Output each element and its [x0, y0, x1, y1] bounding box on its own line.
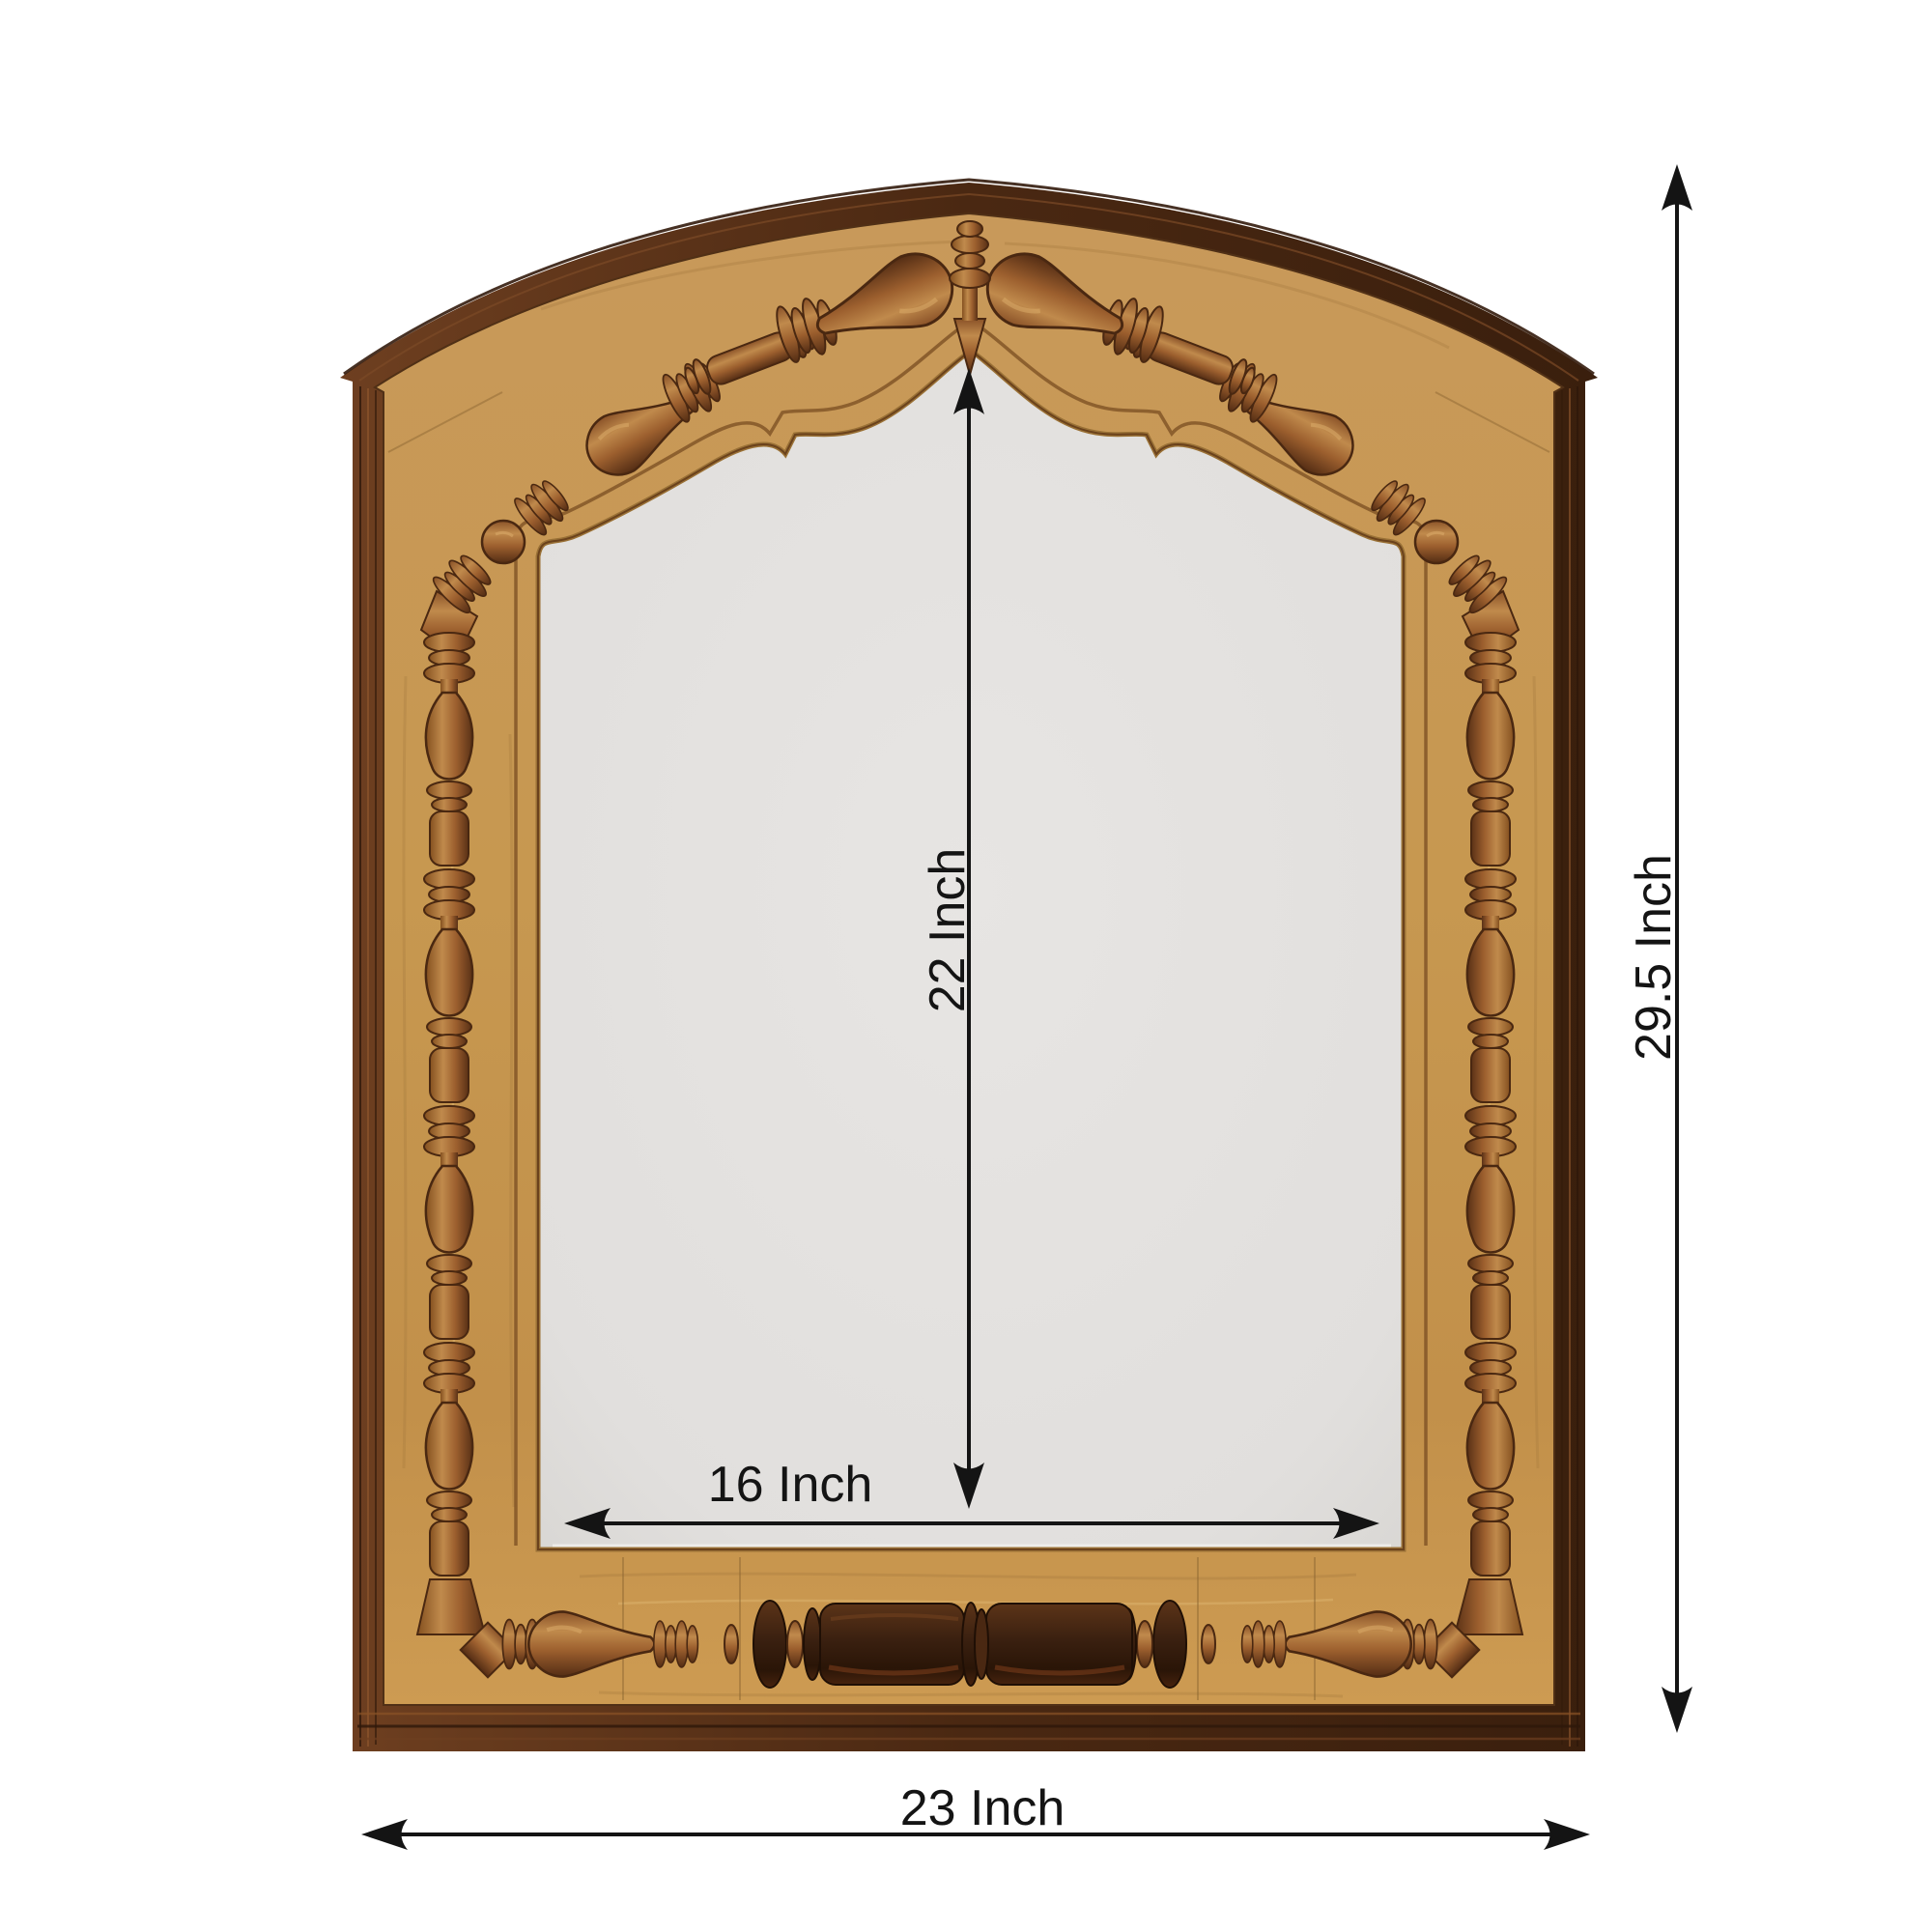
arrow-left-icon	[361, 1819, 408, 1850]
bottom-center-cylinder	[820, 1603, 1132, 1686]
arrow-up-icon	[1662, 164, 1692, 211]
inner-height-dimension-label: 22 Inch	[923, 848, 973, 1013]
inner-width-dimension-label: 16 Inch	[708, 1460, 873, 1510]
outer-height-dimension-label: 29.5 Inch	[1629, 854, 1679, 1061]
arrow-down-icon	[1662, 1687, 1692, 1733]
arrow-right-icon	[1544, 1819, 1590, 1850]
product-dimension-diagram: 22 Inch 16 Inch 29.5 Inch 23 Inch	[0, 0, 1932, 1932]
outer-width-dimension-label: 23 Inch	[900, 1783, 1065, 1833]
